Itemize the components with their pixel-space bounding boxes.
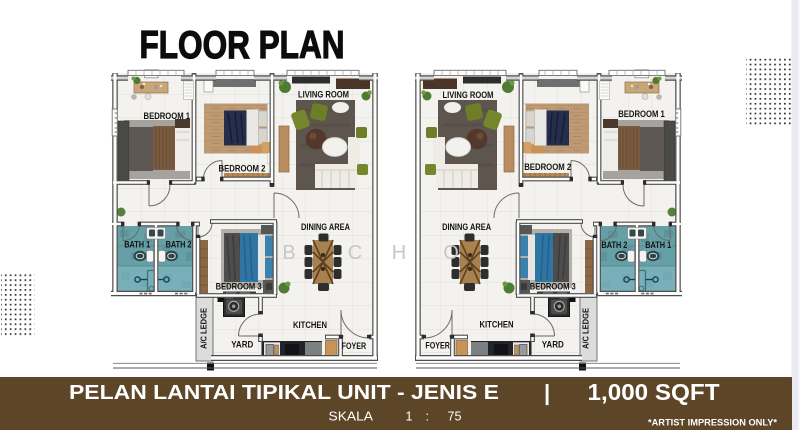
svg-text:BEDROOM 3: BEDROOM 3 [216, 282, 262, 292]
svg-text:O: O [443, 242, 459, 264]
svg-text:BEDROOM 1: BEDROOM 1 [144, 111, 191, 121]
svg-text:1: 1 [406, 410, 413, 424]
svg-text:A/C LEDGE: A/C LEDGE [581, 307, 590, 349]
svg-text:DINING AREA: DINING AREA [442, 222, 491, 232]
svg-text:KITCHEN: KITCHEN [293, 320, 327, 330]
svg-text:B: B [282, 242, 295, 264]
svg-text:BEDROOM 2: BEDROOM 2 [524, 162, 571, 172]
svg-text:BATH 2: BATH 2 [601, 240, 627, 250]
svg-text:LIVING ROOM: LIVING ROOM [298, 90, 349, 100]
svg-text:H: H [392, 242, 406, 264]
svg-text:BATH 1: BATH 1 [645, 240, 671, 250]
svg-text:*ARTIST IMPRESSION ONLY*: *ARTIST IMPRESSION ONLY* [648, 418, 777, 428]
svg-text:BEDROOM 2: BEDROOM 2 [219, 164, 266, 174]
svg-text:PELAN LANTAI TIPIKAL UNIT - JE: PELAN LANTAI TIPIKAL UNIT - JENIS E [69, 381, 499, 404]
svg-text:KITCHEN: KITCHEN [480, 320, 514, 330]
svg-text:YARD: YARD [231, 340, 253, 350]
svg-text:FLOOR PLAN: FLOOR PLAN [140, 24, 345, 67]
svg-text:DINING AREA: DINING AREA [301, 222, 350, 232]
svg-text:BEDROOM 1: BEDROOM 1 [618, 109, 665, 119]
svg-text::: : [426, 410, 429, 424]
svg-text:C: C [348, 242, 362, 264]
svg-text:BATH 1: BATH 1 [124, 240, 150, 250]
svg-text:BATH 2: BATH 2 [166, 240, 192, 250]
svg-text:A/C LEDGE: A/C LEDGE [200, 307, 209, 349]
svg-text:75: 75 [448, 410, 462, 424]
svg-text:FOYER: FOYER [342, 341, 367, 351]
svg-text:YARD: YARD [542, 340, 564, 350]
svg-text:FOYER: FOYER [425, 341, 450, 351]
svg-text:1,000 SQFT: 1,000 SQFT [588, 379, 720, 405]
svg-text:BEDROOM 3: BEDROOM 3 [530, 282, 576, 292]
svg-text:|: | [544, 380, 550, 405]
svg-text:LIVING ROOM: LIVING ROOM [443, 90, 494, 100]
svg-text:SKALA: SKALA [329, 410, 374, 424]
